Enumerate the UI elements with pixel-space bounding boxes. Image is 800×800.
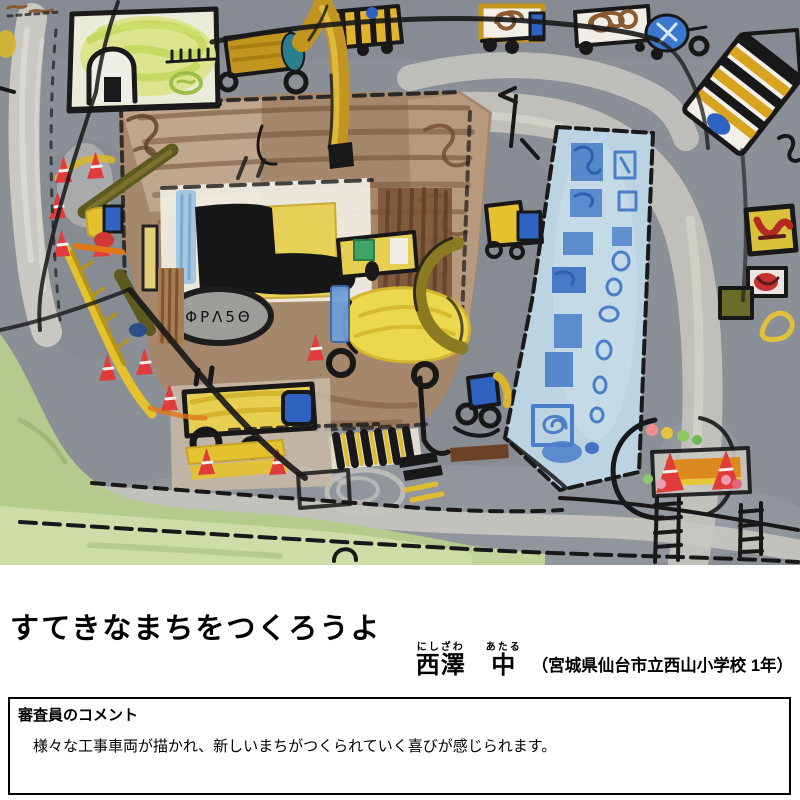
artist-first-name: 中: [491, 653, 516, 678]
contest-entry-page: ΦΡΛ5Θ: [0, 0, 800, 800]
artist-last-name: 西澤: [416, 653, 466, 678]
sign-glyphs: ΦΡΛ5Θ: [185, 308, 252, 326]
judge-comment-body: 様々な工事車両が描かれ、新しいまちがつくられていく喜びが感じられます。: [18, 736, 781, 757]
artwork-image: ΦΡΛ5Θ: [0, 0, 800, 565]
judge-comment-heading: 審査員のコメント: [18, 707, 781, 725]
artwork-drawing: ΦΡΛ5Θ: [0, 0, 800, 565]
artist-affiliation: （宮城県仙台市立西山小学校 1年）: [532, 652, 793, 678]
artist-credit: にしざわ 西澤 あたる 中 （宮城県仙台市立西山小学校 1年）: [416, 642, 793, 678]
judge-comment-box: 審査員のコメント 様々な工事車両が描かれ、新しいまちがつくられていく喜びが感じら…: [8, 697, 791, 795]
artwork-title: すてきなまちをつくろうよ: [10, 605, 381, 647]
green-house: [69, 9, 220, 111]
artist-first-name-block: あたる 中: [486, 642, 522, 678]
artist-last-name-block: にしざわ 西澤: [416, 642, 466, 678]
